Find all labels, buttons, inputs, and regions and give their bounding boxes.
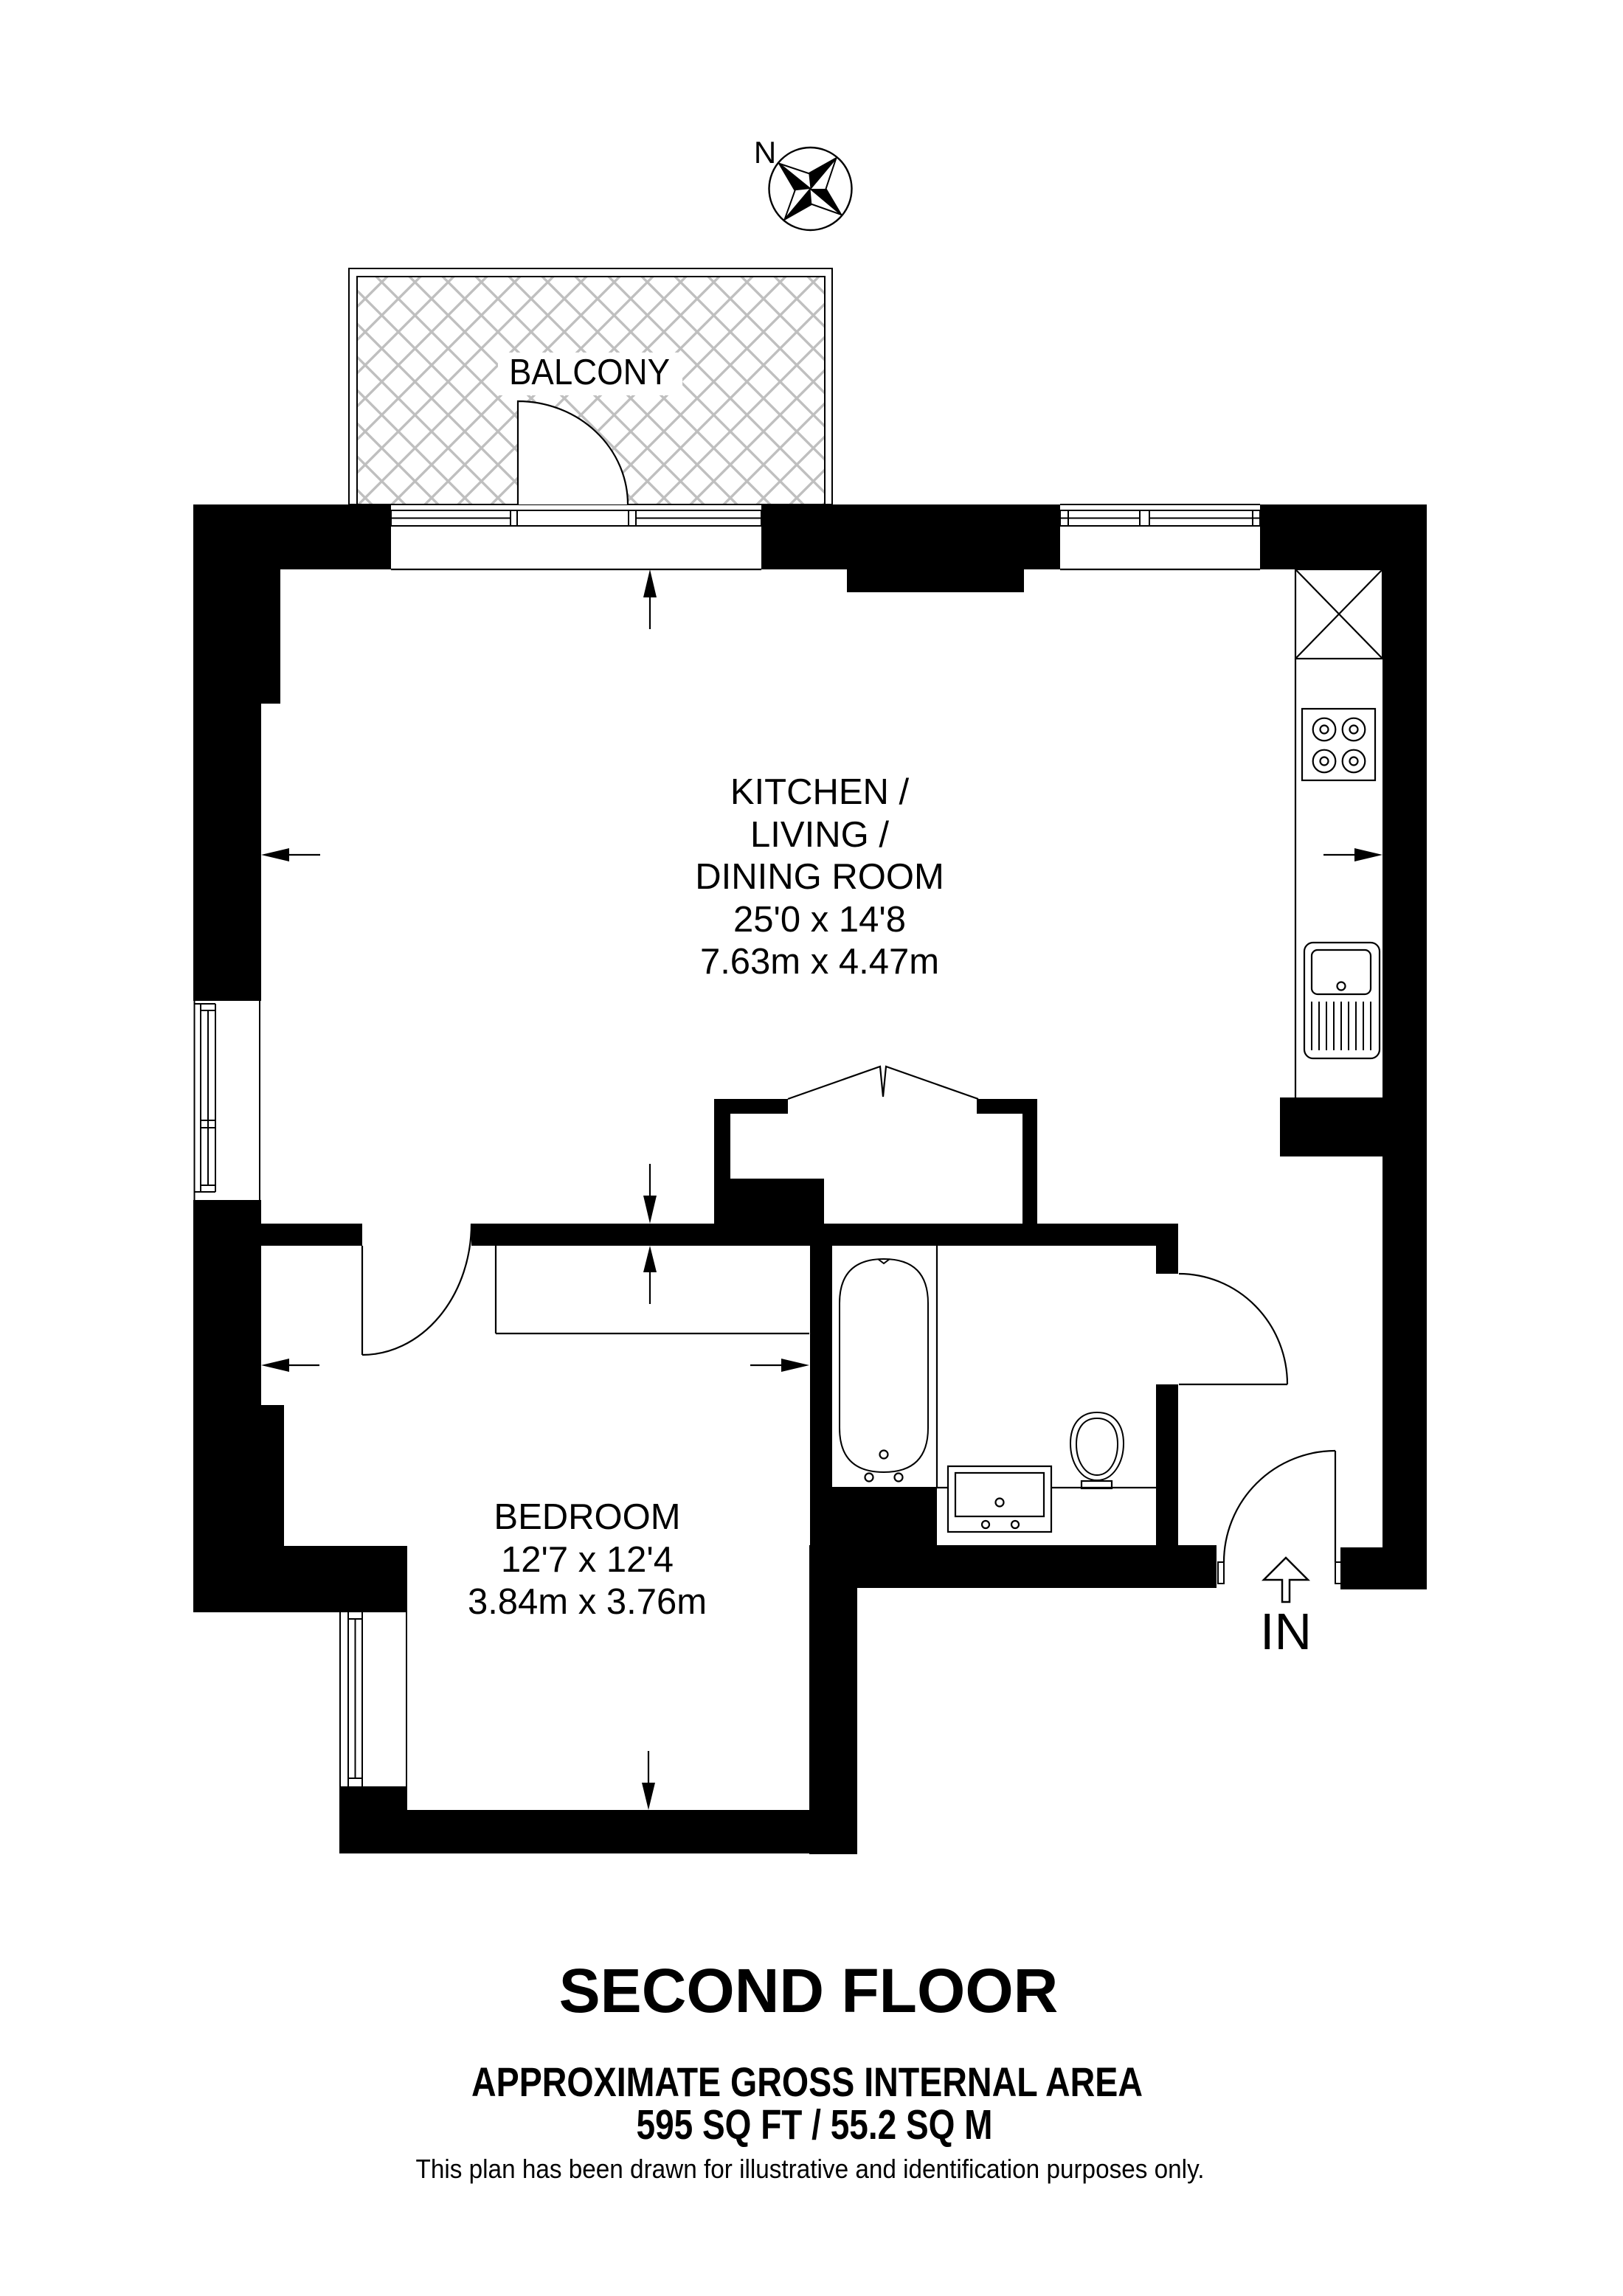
svg-text:7.63m x 4.47m: 7.63m x 4.47m [700, 942, 939, 982]
svg-text:APPROXIMATE GROSS INTERNAL ARE: APPROXIMATE GROSS INTERNAL AREA [471, 2059, 1143, 2105]
svg-text:12'7 x 12'4: 12'7 x 12'4 [501, 1540, 674, 1580]
svg-text:3.84m x 3.76m: 3.84m x 3.76m [468, 1582, 707, 1622]
svg-text:KITCHEN /: KITCHEN / [730, 772, 910, 812]
svg-text:LIVING /: LIVING / [750, 815, 889, 855]
svg-text:25'0 x 14'8: 25'0 x 14'8 [733, 900, 906, 940]
svg-text:IN: IN [1260, 1603, 1312, 1660]
svg-text:N: N [754, 135, 776, 170]
svg-text:DINING ROOM: DINING ROOM [695, 857, 944, 897]
svg-text:SECOND FLOOR: SECOND FLOOR [559, 1956, 1059, 2025]
svg-text:595 SQ FT / 55.2 SQ M: 595 SQ FT / 55.2 SQ M [637, 2101, 993, 2148]
svg-text:BALCONY: BALCONY [509, 353, 670, 392]
svg-text:This plan has been drawn for i: This plan has been drawn for illustrativ… [416, 2154, 1205, 2184]
svg-text:BEDROOM: BEDROOM [494, 1497, 680, 1537]
